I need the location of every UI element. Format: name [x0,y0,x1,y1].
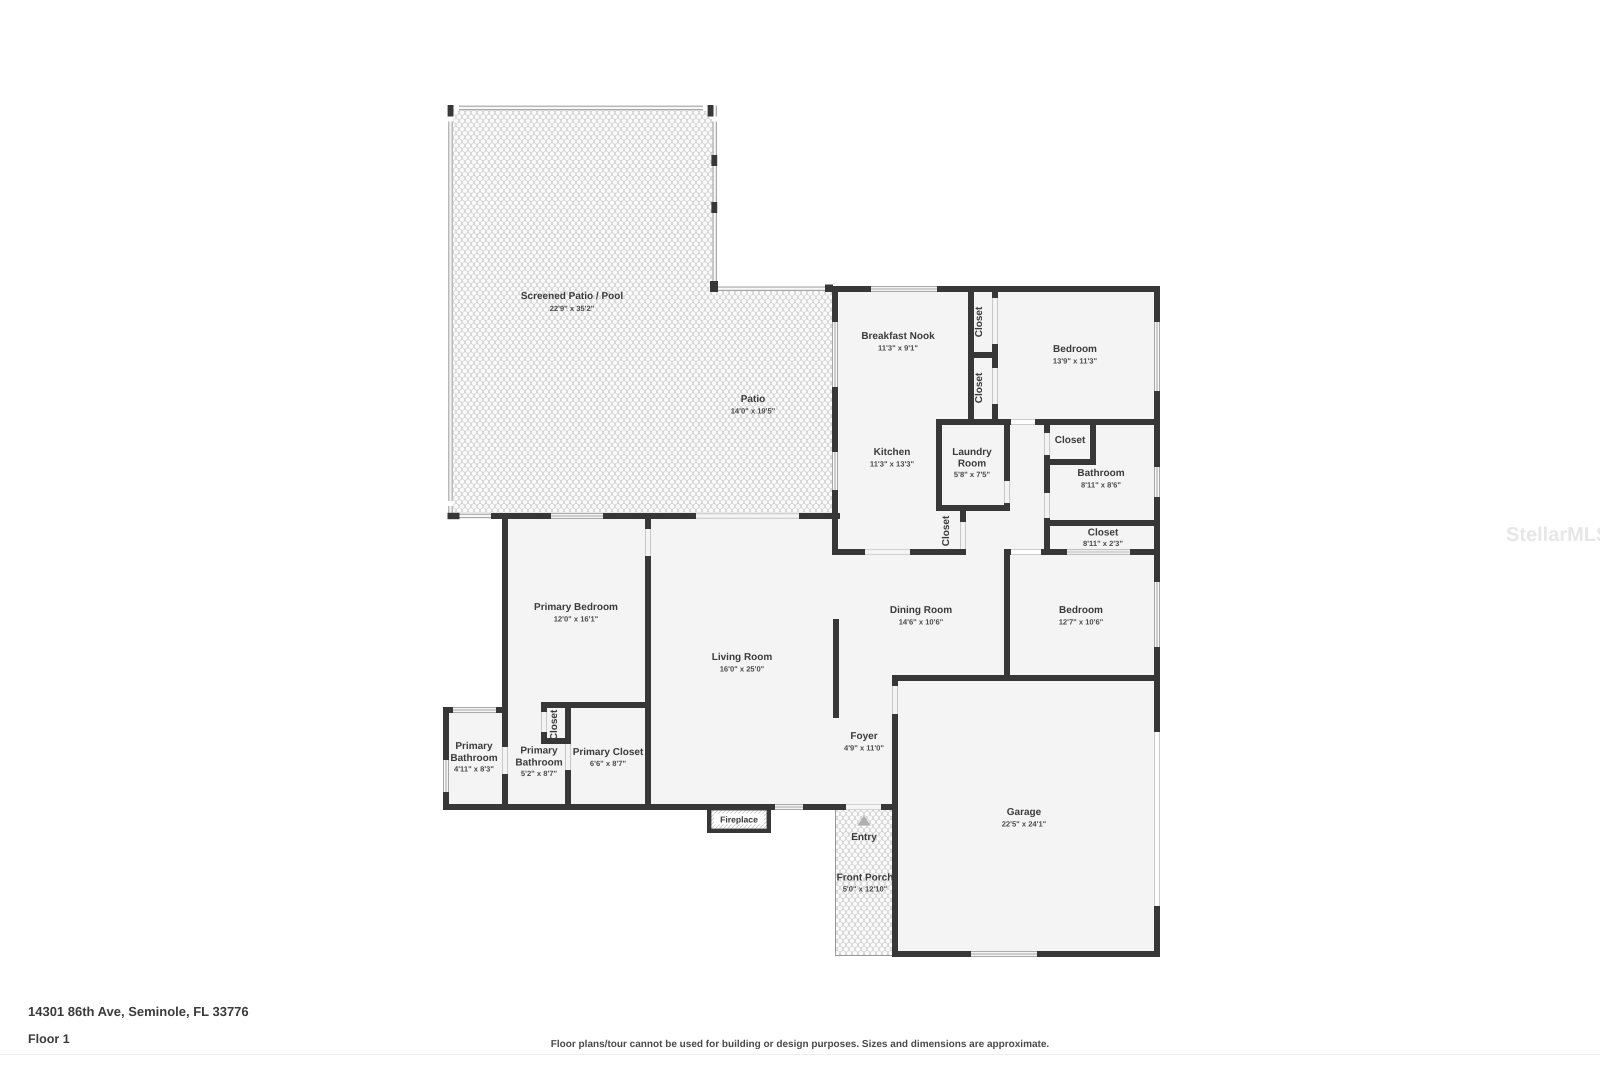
svg-text:Room: Room [958,459,986,470]
svg-text:4'11" x 8'3": 4'11" x 8'3" [454,765,494,774]
svg-text:Garage: Garage [1007,807,1042,818]
svg-text:Closet: Closet [1055,435,1086,446]
svg-text:Closet: Closet [941,515,952,546]
svg-text:6'6" x 8'7": 6'6" x 8'7" [590,759,627,768]
svg-text:Primary Closet: Primary Closet [573,747,644,758]
svg-text:Front Porch: Front Porch [837,873,894,884]
svg-text:11'3" x 13'3": 11'3" x 13'3" [870,460,915,469]
svg-text:8'11" x 8'6": 8'11" x 8'6" [1081,481,1121,490]
svg-text:4'9" x 11'0": 4'9" x 11'0" [844,744,884,753]
svg-text:Bedroom: Bedroom [1053,344,1097,355]
svg-text:Breakfast Nook: Breakfast Nook [861,331,935,342]
svg-text:5'0" x 12'10": 5'0" x 12'10" [843,885,888,894]
svg-text:StellarMLS: StellarMLS [1506,524,1600,546]
svg-text:12'7" x 10'6": 12'7" x 10'6" [1059,618,1104,627]
svg-text:Laundry: Laundry [952,447,992,458]
svg-text:Bedroom: Bedroom [1059,605,1103,616]
svg-text:Bathroom: Bathroom [450,753,497,764]
svg-text:Kitchen: Kitchen [874,447,911,458]
svg-text:Foyer: Foyer [850,731,877,742]
svg-text:Entry: Entry [851,832,877,843]
svg-text:14'6" x 10'6": 14'6" x 10'6" [899,618,944,627]
svg-text:Primary: Primary [455,741,493,752]
svg-text:Closet: Closet [974,372,985,403]
svg-text:12'0" x 16'1": 12'0" x 16'1" [554,615,599,624]
svg-text:5'2" x 8'7": 5'2" x 8'7" [521,769,558,778]
svg-text:Living Room: Living Room [712,652,773,663]
svg-text:11'3" x 9'1": 11'3" x 9'1" [878,344,918,353]
svg-text:Patio: Patio [741,394,765,405]
svg-text:Floor 1: Floor 1 [28,1032,70,1046]
svg-text:Dining Room: Dining Room [890,605,952,616]
svg-text:Closet: Closet [1088,528,1119,539]
svg-text:13'9" x 11'3": 13'9" x 11'3" [1053,357,1098,366]
svg-text:Screened Patio / Pool: Screened Patio / Pool [521,291,623,302]
svg-text:14301 86th Ave, Seminole, FL 3: 14301 86th Ave, Seminole, FL 33776 [28,1004,249,1019]
svg-text:Closet: Closet [974,306,985,337]
svg-text:Bathroom: Bathroom [1077,468,1124,479]
svg-text:Primary Bedroom: Primary Bedroom [534,602,618,613]
svg-text:8'11" x 2'3": 8'11" x 2'3" [1083,539,1123,548]
svg-text:Floor plans/tour cannot be use: Floor plans/tour cannot be used for buil… [551,1039,1050,1050]
svg-text:Closet: Closet [549,709,560,740]
svg-text:16'0" x 25'0": 16'0" x 25'0" [720,665,765,674]
svg-text:Primary: Primary [520,746,558,757]
svg-text:14'0" x 19'5": 14'0" x 19'5" [731,407,776,416]
svg-text:5'8" x 7'5": 5'8" x 7'5" [954,470,991,479]
svg-text:Fireplace: Fireplace [720,815,758,825]
svg-text:22'9" x 35'2": 22'9" x 35'2" [550,304,595,313]
svg-text:22'5" x 24'1": 22'5" x 24'1" [1002,820,1047,829]
svg-text:Bathroom: Bathroom [515,758,562,769]
